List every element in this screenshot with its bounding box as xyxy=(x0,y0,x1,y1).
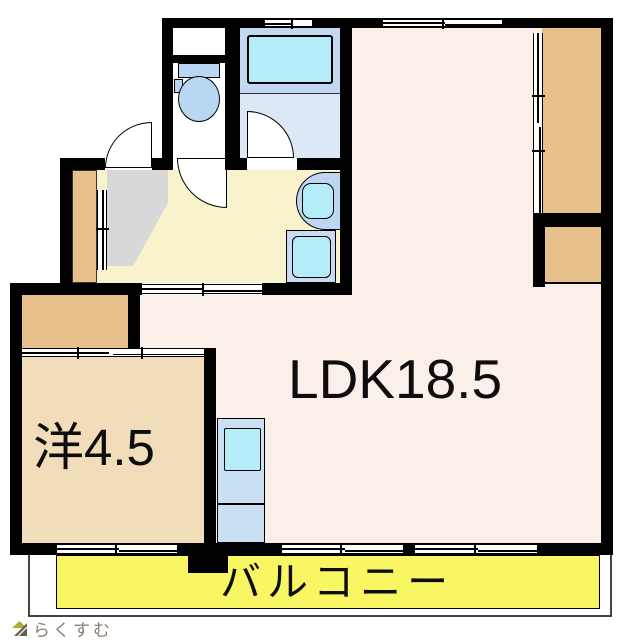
sliding-door-washroom-ldk xyxy=(142,284,262,294)
closet-ldk-lower xyxy=(545,227,601,284)
closet-western-room xyxy=(22,290,128,348)
wall xyxy=(204,348,216,555)
window-western-room xyxy=(57,544,177,554)
western-room-label: 洋4.5 xyxy=(33,422,155,473)
shoe-cabinet xyxy=(72,170,97,283)
sliding-door-western-room xyxy=(22,348,204,357)
window-ldk-balcony-right xyxy=(415,544,537,554)
wall xyxy=(162,18,173,170)
window-ldk-top xyxy=(383,19,502,27)
wall xyxy=(297,158,340,170)
sliding-door-closet xyxy=(533,33,543,213)
logo-text: らくすむ xyxy=(33,616,113,640)
wall xyxy=(10,283,22,555)
wall xyxy=(262,283,352,295)
bathtub xyxy=(247,35,333,84)
wall xyxy=(601,18,613,555)
house-icon xyxy=(11,620,28,637)
toilet-bowl xyxy=(178,76,220,122)
wall xyxy=(60,158,72,290)
ldk-label: LDK18.5 xyxy=(288,352,502,407)
kitchen-sink xyxy=(224,428,261,471)
wall xyxy=(225,18,240,170)
washing-machine xyxy=(292,236,331,278)
entrance-door xyxy=(105,122,152,168)
wall xyxy=(152,158,173,170)
ldk-room xyxy=(140,295,216,348)
washbasin xyxy=(302,183,334,219)
wall xyxy=(227,158,247,170)
balcony-label: バルコニー xyxy=(220,562,454,603)
wall xyxy=(128,283,140,348)
window-ldk-balcony-left xyxy=(282,544,403,554)
wall xyxy=(10,283,142,295)
wall xyxy=(340,18,352,295)
kitchen-divider xyxy=(218,503,264,505)
floor-plan: LDK18.5 洋4.5 バルコニー らくすむ xyxy=(0,0,640,640)
closet-ldk-upper xyxy=(542,28,601,213)
window-bathroom xyxy=(265,19,312,27)
window-entrance xyxy=(97,190,107,270)
logo: らくすむ xyxy=(11,616,113,640)
toilet-shelf xyxy=(173,55,225,63)
wall xyxy=(533,213,545,287)
